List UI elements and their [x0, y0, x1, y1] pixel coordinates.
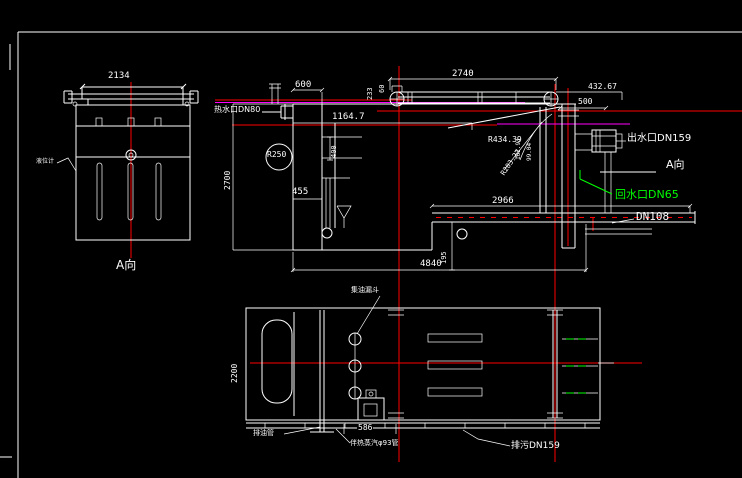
- dim-195: 195: [441, 251, 448, 264]
- cad-canvas[interactable]: 2134 液位计 A向 热水口DN80 600 2740 432.67 500 …: [0, 0, 742, 478]
- dim-600: 600: [295, 81, 311, 90]
- dim-400: 400: [331, 145, 338, 158]
- hot-water-label: 热水口DN80: [214, 106, 260, 114]
- dim-2966: 2966: [492, 197, 514, 206]
- dim-4840: 4840: [420, 260, 442, 269]
- dn108-label: DN108: [636, 211, 669, 222]
- dim-2700: 2700: [224, 171, 232, 190]
- dim-2200: 2200: [231, 364, 239, 383]
- dim-99-04: 99.04: [527, 143, 533, 161]
- dim-1164-7: 1164.7: [332, 113, 365, 122]
- dim-500: 500: [578, 98, 592, 106]
- dim-102-93: 102.93: [516, 138, 522, 160]
- dim-586: 586: [357, 424, 373, 432]
- level-gauge-label: 液位计: [36, 159, 54, 165]
- dim-432-67: 432.67: [588, 83, 617, 91]
- plan-view-geometry: [246, 296, 614, 446]
- left-view-geometry: [57, 84, 198, 240]
- dim-455: 455: [292, 188, 308, 197]
- dim-2740: 2740: [452, 70, 474, 79]
- elevation-geometry: [233, 77, 695, 272]
- funnel-label: 集油漏斗: [351, 287, 379, 294]
- outlet-label: 出水口DN159: [627, 134, 691, 144]
- dim-2134: 2134: [108, 72, 130, 81]
- drain-label: 排污DN159: [511, 442, 560, 451]
- return-water-label: 回水口DN65: [615, 189, 679, 200]
- oil-pipe-label: 排油管: [253, 430, 274, 437]
- dim-233: 233: [367, 87, 374, 100]
- left-view-label: A向: [116, 259, 136, 271]
- steam-pipe-label: 伴热蒸汽φ93管: [350, 440, 399, 447]
- right-view-label: A向: [666, 159, 685, 170]
- dim-60: 60: [379, 85, 386, 93]
- radius-r250: R250: [267, 151, 286, 159]
